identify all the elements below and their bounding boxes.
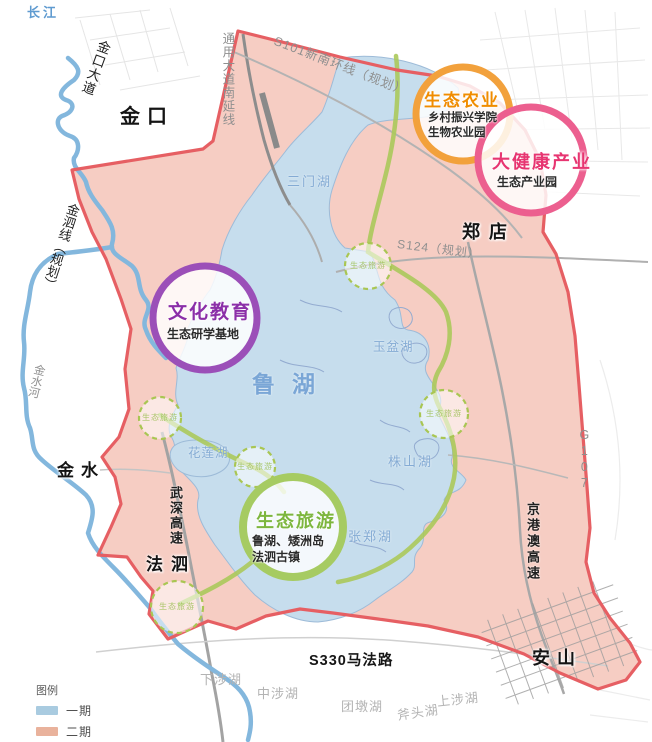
zone-sub-tourism-1: 鲁湖、矮洲岛 bbox=[252, 535, 324, 549]
eco-node-label: 生态旅游 bbox=[233, 462, 277, 471]
legend-swatch-phase1 bbox=[36, 706, 58, 715]
label-changjiang: 长江 bbox=[27, 6, 59, 21]
zone-sub-tourism-2: 法泗古镇 bbox=[252, 551, 300, 565]
label-zhengdian: 郑店 bbox=[462, 222, 516, 243]
zone-title-culture: 文化教育 bbox=[168, 302, 252, 324]
label-g107: G107 bbox=[577, 428, 591, 492]
label-sanmenhu: 三门湖 bbox=[287, 175, 332, 190]
zone-sub-agriculture-1: 乡村振兴学院 bbox=[428, 112, 497, 125]
planning-map: 长江 金口大道 通用大道南延线 S101新南环线（规划） 金口 三门湖 金泗线（… bbox=[0, 0, 652, 742]
label-anshan: 安山 bbox=[532, 648, 582, 669]
label-hualianhu: 花莲湖 bbox=[188, 446, 229, 460]
zone-title-health: 大健康产业 bbox=[492, 152, 592, 173]
legend-swatch-phase2 bbox=[36, 727, 58, 736]
eco-node-label: 生态旅游 bbox=[138, 413, 182, 422]
label-jinkou: 金口 bbox=[120, 106, 174, 129]
legend-label-phase2: 二期 bbox=[66, 723, 92, 740]
label-fasi: 法泗 bbox=[146, 555, 196, 575]
label-zhushanhu: 株山湖 bbox=[388, 455, 433, 470]
legend-row-phase2: 二期 bbox=[36, 723, 92, 740]
zone-title-agriculture: 生态农业 bbox=[424, 91, 500, 111]
legend-row-phase1: 一期 bbox=[36, 702, 92, 719]
label-s330: S330马法路 bbox=[309, 653, 393, 670]
label-tuandunhu: 团墩湖 bbox=[341, 700, 383, 715]
label-yupenhu: 玉盆湖 bbox=[373, 340, 414, 354]
zone-sub-agriculture-2: 生物农业园 bbox=[428, 127, 486, 140]
legend-title: 图例 bbox=[36, 682, 92, 698]
label-jinggangao-gaosu: 京港澳高速 bbox=[524, 502, 539, 582]
eco-node-label: 生态旅游 bbox=[422, 409, 466, 418]
label-wushen-gaosu: 武深高速 bbox=[167, 486, 182, 546]
zone-title-tourism: 生态旅游 bbox=[256, 511, 336, 532]
label-jinshui: 金水 bbox=[57, 461, 105, 481]
zone-sub-culture-1: 生态研学基地 bbox=[167, 328, 239, 342]
zone-sub-health-1: 生态产业园 bbox=[497, 176, 557, 190]
legend-label-phase1: 一期 bbox=[66, 702, 92, 719]
label-zhongshehu: 中涉湖 bbox=[257, 687, 299, 702]
label-xiashehu: 下涉湖 bbox=[200, 673, 242, 688]
legend: 图例 一期 二期 bbox=[36, 682, 92, 740]
label-tongyong-dadao: 通用大道南延线 bbox=[220, 32, 234, 127]
eco-node-label: 生态旅游 bbox=[155, 602, 199, 611]
label-zhangzhenghu: 张郑湖 bbox=[348, 530, 393, 545]
eco-node-label: 生态旅游 bbox=[346, 261, 390, 270]
label-luhu: 鲁湖 bbox=[252, 371, 332, 397]
